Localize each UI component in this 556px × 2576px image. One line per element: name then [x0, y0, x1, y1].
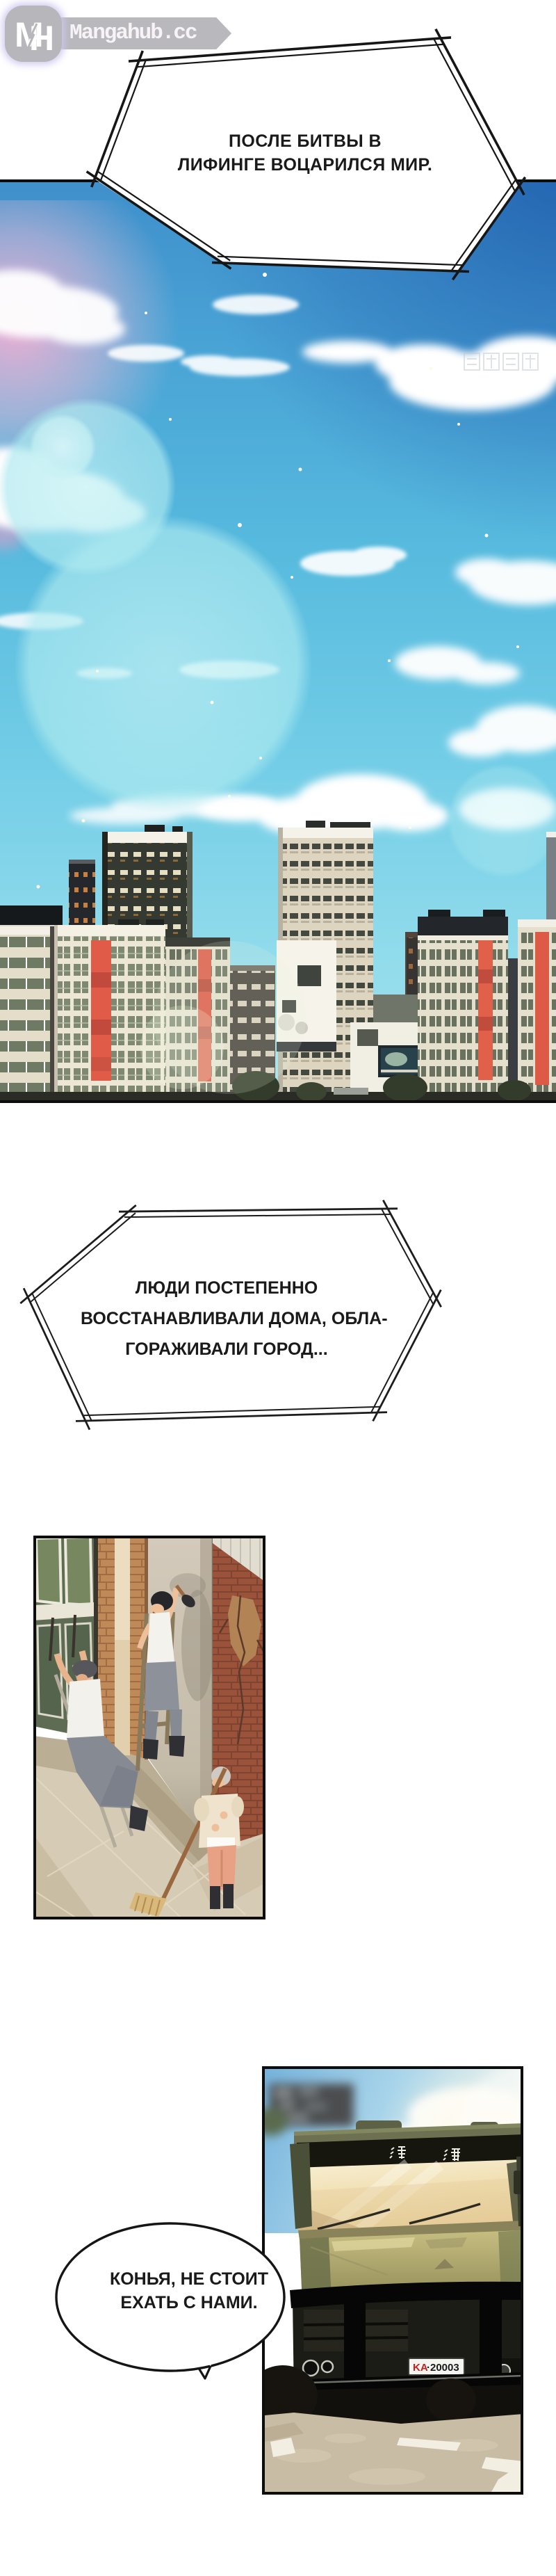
svg-text:KA: KA — [413, 2362, 428, 2374]
svg-text:·20003: ·20003 — [427, 2362, 459, 2374]
